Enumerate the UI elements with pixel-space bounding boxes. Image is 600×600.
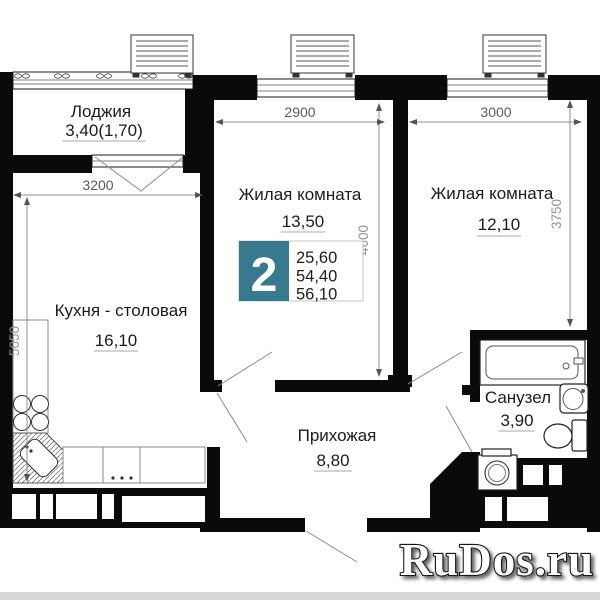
room-name-loggia: Лоджия [71, 102, 131, 121]
dim-living2-width: 3000 [480, 104, 511, 120]
watermark-logo: RuDos.ru [400, 535, 594, 585]
dim-kitchen-width: 3200 [82, 177, 113, 193]
window-living1 [257, 79, 355, 97]
room-name-hallway: Прихожая [298, 426, 377, 445]
badge-value-3: 56,10 [296, 286, 337, 304]
room-area-hallway: 8,80 [316, 451, 349, 470]
living2-door-swing [408, 352, 462, 384]
room-area-kitchen: 16,10 [95, 331, 138, 350]
entrance-door-swing [306, 531, 357, 562]
toilet-icon [544, 420, 587, 451]
kitchen-door-swing [217, 393, 247, 442]
dim-living1-width: 2900 [284, 104, 315, 120]
wash-basin-icon [560, 384, 588, 413]
dim-kitchen-depth: 5050 [7, 326, 22, 356]
room-name-kitchen: Кухня - столовая [55, 301, 188, 320]
room-area-living1: 13,50 [282, 212, 325, 231]
floorplan-page: 2900 3000 3200 4600 3750 5050 Лоджия 3,4… [0, 0, 600, 600]
room-name-living1: Жилая комната [239, 185, 362, 204]
badge-room-count: 2 [251, 249, 278, 302]
kitchen-counter-bottom [63, 447, 205, 483]
apartment-badge: 2 25,60 54,40 56,10 [239, 241, 363, 304]
kitchen-corner-sink-icon [13, 433, 66, 483]
room-area-bathroom: 3,90 [500, 411, 533, 430]
badge-value-1: 25,60 [296, 249, 337, 267]
ac-unit-icon [131, 35, 193, 77]
ac-units [131, 35, 546, 77]
ac-unit-icon [483, 35, 546, 77]
washing-machine-icon [478, 449, 517, 490]
window-living2 [447, 79, 548, 97]
room-name-living2: Жилая комната [431, 184, 554, 203]
ac-unit-icon [291, 35, 354, 77]
living1-door-swing [218, 352, 272, 386]
bathtub-icon [480, 340, 585, 385]
bathroom-door-swing [446, 406, 472, 452]
badge-value-2: 54,40 [296, 268, 337, 286]
room-area-living2: 12,10 [478, 215, 521, 234]
bottom-strip [0, 592, 600, 600]
loggia-glazing [13, 72, 193, 89]
floorplan-drawing: 2900 3000 3200 4600 3750 5050 Лоджия 3,4… [0, 0, 600, 600]
dim-living2-depth: 3750 [549, 199, 564, 229]
room-name-bathroom: Санузел [485, 388, 551, 407]
room-area-loggia: 3,40(1,70) [65, 121, 143, 140]
